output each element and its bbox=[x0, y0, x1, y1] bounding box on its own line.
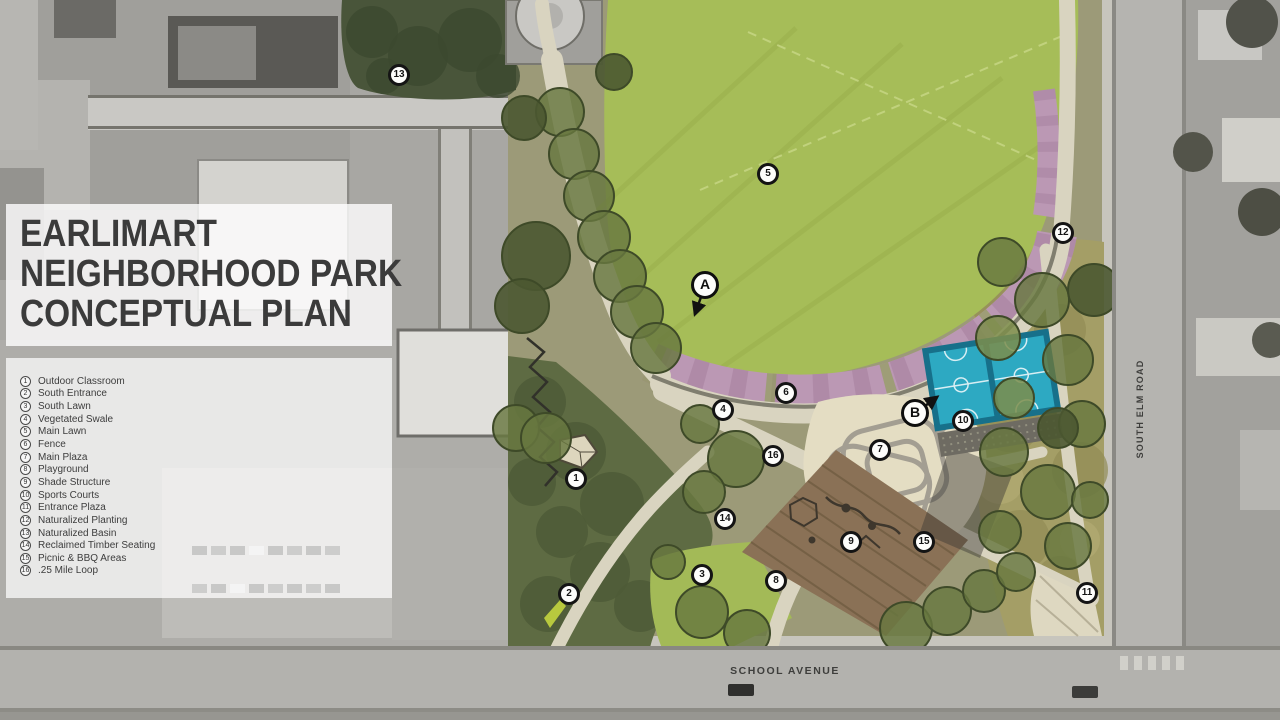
legend-number-badge: 2 bbox=[20, 388, 31, 399]
legend-number-badge: 4 bbox=[20, 414, 31, 425]
legend-number-badge: 8 bbox=[20, 464, 31, 475]
legend-number-badge: 6 bbox=[20, 439, 31, 450]
legend-item-label: .25 Mile Loop bbox=[38, 565, 98, 576]
site-plan-screenshot: SCHOOL AVENUE SOUTH ELM ROAD 12345678910… bbox=[0, 0, 1280, 720]
legend-item: 16.25 Mile Loop bbox=[20, 565, 392, 578]
legend-item: 11Entrance Plaza bbox=[20, 501, 392, 514]
legend-item-label: Fence bbox=[38, 439, 66, 450]
legend-item-label: Naturalized Basin bbox=[38, 528, 116, 539]
legend-item-label: Naturalized Planting bbox=[38, 515, 128, 526]
legend-number-badge: 10 bbox=[20, 490, 31, 501]
legend-item: 10Sports Courts bbox=[20, 489, 392, 502]
legend-item-label: Picnic & BBQ Areas bbox=[38, 553, 126, 564]
legend-number-badge: 14 bbox=[20, 540, 31, 551]
legend-item: 13Naturalized Basin bbox=[20, 527, 392, 540]
legend-number-badge: 7 bbox=[20, 452, 31, 463]
legend-item: 14Reclaimed Timber Seating bbox=[20, 539, 392, 552]
legend-item: 2South Entrance bbox=[20, 388, 392, 401]
legend-number-badge: 5 bbox=[20, 426, 31, 437]
legend-item-label: Playground bbox=[38, 464, 89, 475]
legend-item: 4Vegetated Swale bbox=[20, 413, 392, 426]
legend-number-badge: 11 bbox=[20, 502, 31, 513]
page-title: EARLIMART NEIGHBORHOOD PARK CONCEPTUAL P… bbox=[20, 214, 347, 334]
legend-item-label: South Lawn bbox=[38, 401, 91, 412]
legend-item: 7Main Plaza bbox=[20, 451, 392, 464]
title-line-2: NEIGHBORHOOD PARK bbox=[20, 254, 347, 294]
legend-item: 15Picnic & BBQ Areas bbox=[20, 552, 392, 565]
naturalized-basin-area bbox=[341, 0, 520, 100]
legend-number-badge: 9 bbox=[20, 477, 31, 488]
legend-item: 8Playground bbox=[20, 463, 392, 476]
legend-item: 12Naturalized Planting bbox=[20, 514, 392, 527]
legend-number-badge: 16 bbox=[20, 565, 31, 576]
legend-item-label: Outdoor Classroom bbox=[38, 376, 125, 387]
legend-item: 1Outdoor Classroom bbox=[20, 375, 392, 388]
legend-item: 5Main Lawn bbox=[20, 426, 392, 439]
legend-number-badge: 3 bbox=[20, 401, 31, 412]
school-avenue-road bbox=[0, 646, 1280, 720]
legend-item: 6Fence bbox=[20, 438, 392, 451]
legend-number-badge: 13 bbox=[20, 528, 31, 539]
legend-number-badge: 12 bbox=[20, 515, 31, 526]
south-elm-road bbox=[1112, 0, 1280, 652]
title-line-1: EARLIMART bbox=[20, 214, 347, 254]
legend-item-label: Shade Structure bbox=[38, 477, 110, 488]
legend-item-label: Main Plaza bbox=[38, 452, 87, 463]
road-label-school-avenue: SCHOOL AVENUE bbox=[700, 665, 870, 677]
legend-panel: 1Outdoor Classroom2South Entrance3South … bbox=[6, 358, 392, 598]
legend-item-label: South Entrance bbox=[38, 388, 107, 399]
legend-item-label: Reclaimed Timber Seating bbox=[38, 540, 155, 551]
legend-item-label: Entrance Plaza bbox=[38, 502, 106, 513]
legend-item-label: Vegetated Swale bbox=[38, 414, 113, 425]
title-panel: EARLIMART NEIGHBORHOOD PARK CONCEPTUAL P… bbox=[6, 204, 392, 346]
legend-list: 1Outdoor Classroom2South Entrance3South … bbox=[6, 358, 392, 577]
legend-number-badge: 15 bbox=[20, 553, 31, 564]
legend-number-badge: 1 bbox=[20, 376, 31, 387]
legend-item: 9Shade Structure bbox=[20, 476, 392, 489]
title-line-3: CONCEPTUAL PLAN bbox=[20, 294, 347, 334]
legend-item: 3South Lawn bbox=[20, 400, 392, 413]
legend-item-label: Main Lawn bbox=[38, 426, 86, 437]
legend-item-label: Sports Courts bbox=[38, 490, 99, 501]
road-label-south-elm-road: SOUTH ELM ROAD bbox=[1135, 349, 1145, 469]
